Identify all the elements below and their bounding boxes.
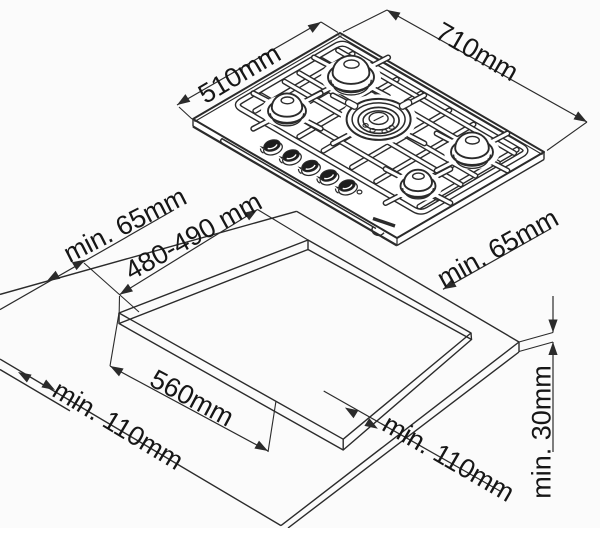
svg-text:min. 30mm: min. 30mm — [527, 365, 557, 499]
